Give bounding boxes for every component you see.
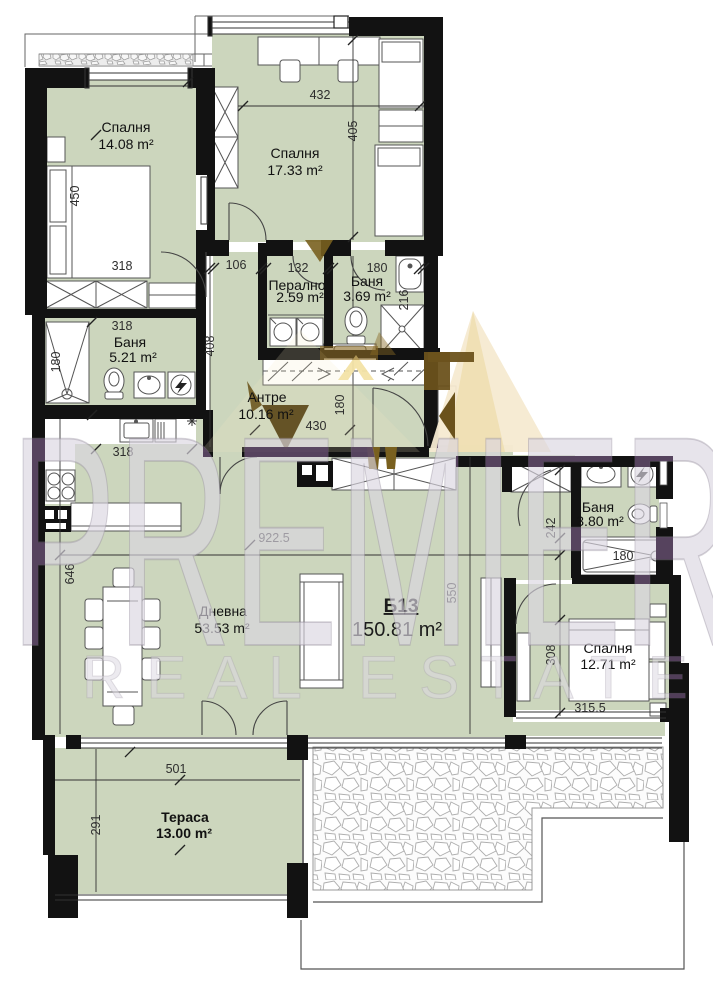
svg-text:132: 132 [288, 261, 309, 275]
svg-text:180: 180 [367, 261, 388, 275]
svg-text:13.00 m²: 13.00 m² [156, 825, 212, 841]
svg-text:Тераса: Тераса [161, 809, 209, 825]
svg-text:17.33 m²: 17.33 m² [267, 162, 323, 178]
svg-text:180: 180 [49, 352, 63, 373]
svg-text:14.08 m²: 14.08 m² [98, 136, 154, 152]
svg-text:408: 408 [203, 336, 217, 357]
svg-text:501: 501 [166, 762, 187, 776]
svg-text:2.59 m²: 2.59 m² [276, 289, 324, 305]
svg-text:216: 216 [397, 290, 411, 311]
svg-text:REAL ESTATE: REAL ESTATE [82, 644, 709, 711]
svg-text:Спалня: Спалня [271, 145, 320, 161]
svg-text:450: 450 [68, 186, 82, 207]
svg-text:Баня: Баня [114, 334, 146, 350]
svg-text:3.69 m²: 3.69 m² [343, 288, 391, 304]
svg-text:318: 318 [112, 259, 133, 273]
svg-text:5.21 m²: 5.21 m² [109, 349, 157, 365]
svg-text:432: 432 [310, 88, 331, 102]
svg-text:318: 318 [112, 319, 133, 333]
svg-text:106: 106 [226, 258, 247, 272]
svg-text:Спалня: Спалня [102, 119, 151, 135]
svg-text:Баня: Баня [351, 273, 383, 289]
svg-text:405: 405 [346, 121, 360, 142]
svg-text:291: 291 [89, 815, 103, 836]
